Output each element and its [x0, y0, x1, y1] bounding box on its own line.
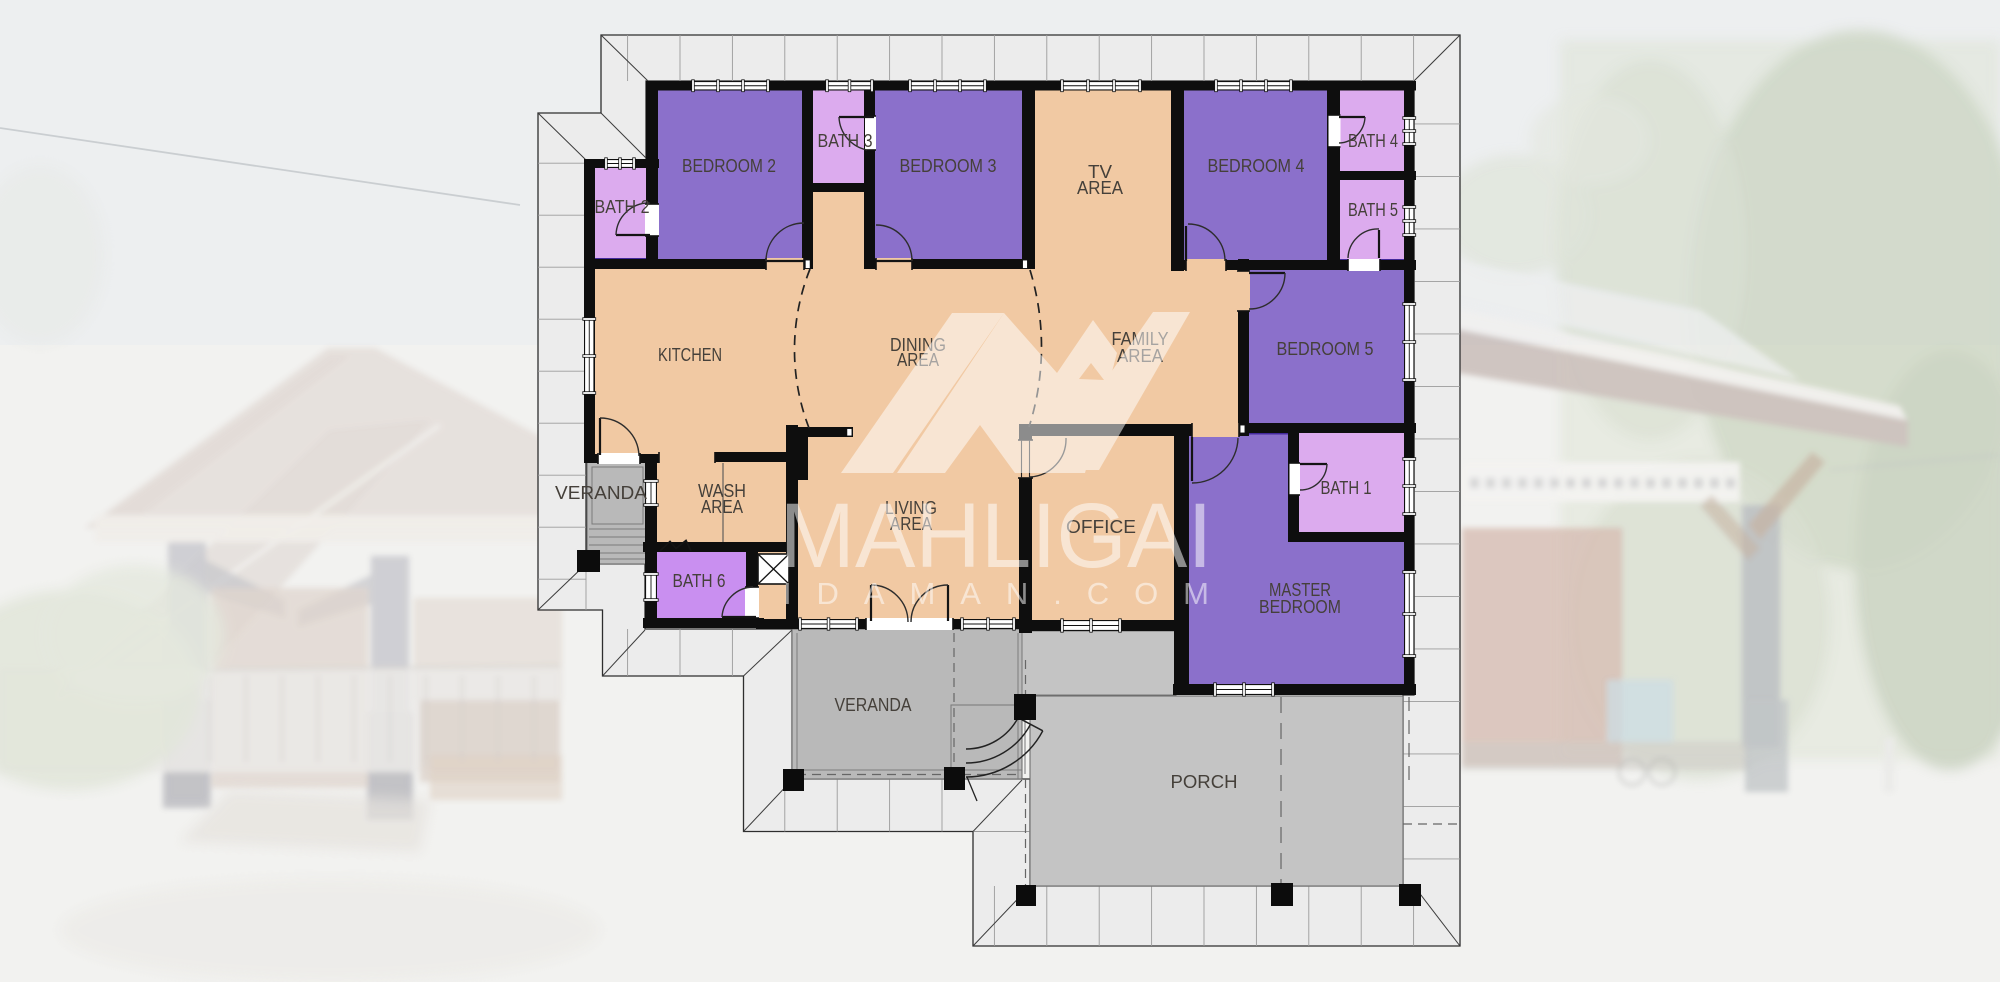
svg-text:BATH 2: BATH 2 [595, 197, 650, 217]
svg-text:BEDROOM 2: BEDROOM 2 [682, 156, 776, 176]
svg-text:BATH 6: BATH 6 [673, 571, 726, 591]
svg-text:KITCHEN: KITCHEN [658, 345, 722, 365]
svg-text:BEDROOM 4: BEDROOM 4 [1208, 156, 1305, 176]
svg-text:AREA: AREA [701, 497, 743, 517]
svg-text:VERANDA: VERANDA [835, 695, 912, 715]
svg-text:BEDROOM: BEDROOM [1259, 597, 1341, 617]
svg-text:BEDROOM 5: BEDROOM 5 [1277, 339, 1374, 359]
svg-text:BATH 1: BATH 1 [1321, 478, 1372, 498]
svg-text:VERANDA: VERANDA [555, 483, 647, 503]
svg-text:PORCH: PORCH [1171, 772, 1238, 792]
svg-text:BEDROOM 3: BEDROOM 3 [900, 156, 997, 176]
svg-text:BATH 3: BATH 3 [818, 131, 873, 151]
svg-text:BATH 4: BATH 4 [1348, 131, 1398, 151]
svg-text:MAHLIGAI: MAHLIGAI [780, 485, 1213, 587]
svg-text:AREA: AREA [1077, 178, 1123, 198]
svg-text:BATH 5: BATH 5 [1348, 200, 1398, 220]
